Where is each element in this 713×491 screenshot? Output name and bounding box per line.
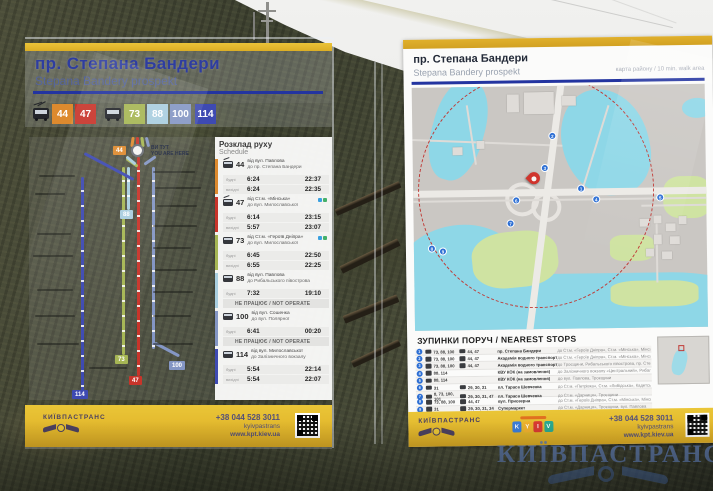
route-to: до пр. Степана Бандери	[247, 165, 301, 171]
route-scheme-map: ВИ ТУТ YOU ARE HERE 44 47 73 88 100 114	[29, 137, 215, 400]
building	[662, 251, 672, 259]
schedule-row-73: 73 від Ст.м. «Героїв Дніпра»до вул. Мило…	[219, 235, 329, 270]
terminal-badge-88: 88	[120, 210, 133, 219]
kyivpastrans-brand: КИЇВПАСТРАНС	[43, 414, 106, 421]
route-color-stripe	[215, 197, 218, 232]
left-stop-sign: пр. Степана Бандери Stepana Bandery pros…	[25, 43, 332, 447]
park-area	[610, 280, 698, 307]
hill-step	[351, 339, 401, 367]
left-sign-header: пр. Степана Бандери Stepana Bandery pros…	[25, 51, 332, 103]
schedule-title: Розклад руху	[219, 140, 329, 149]
stop-label-bar	[153, 171, 195, 173]
bus-icon	[426, 378, 432, 383]
district-map: 2 3 1 4 5 6 7 8 9	[412, 84, 708, 331]
terminal-badge-44: 44	[113, 146, 126, 155]
trolleybus-icon	[459, 356, 465, 361]
left-sign-top-band	[25, 43, 332, 51]
route-to: до Рибальського півострова	[247, 279, 310, 285]
times-weekday: будні5:5422:14	[223, 365, 329, 374]
route-number: 44	[236, 160, 244, 169]
route-feature-icons	[318, 236, 327, 240]
stop-label-bar	[37, 233, 71, 235]
hill-step	[339, 238, 400, 273]
route-feature-icons	[318, 198, 327, 202]
right-sign-subtitle: Stepana Bandery prospekt	[413, 66, 520, 77]
hill-step	[343, 294, 400, 323]
stop-marker: 2	[548, 132, 556, 140]
schedule-panel: Розклад руху Schedule 44 від вул. Павлов…	[215, 137, 332, 400]
stop-marker: 8	[428, 245, 436, 253]
stop-marker: 9	[439, 247, 447, 255]
route-line-114	[81, 177, 84, 392]
nearest-stops-title: ЗУПИНКИ ПОРУЧ / NEAREST STOPS	[417, 334, 576, 346]
route-number: 73	[236, 236, 244, 245]
stop-marker: 5	[656, 193, 664, 201]
kyiv-logo-script	[520, 416, 546, 419]
schedule-subtitle: Schedule	[219, 149, 329, 156]
route-number: 100	[236, 312, 249, 321]
schedule-row-100: 100 від вул. Сошенкадо вул. Полярної буд…	[219, 311, 329, 346]
stop-label-bar	[153, 225, 197, 227]
route-to: до вул. Полярної	[252, 317, 290, 323]
route-line-88	[127, 167, 130, 210]
you-are-here-marker	[131, 144, 144, 157]
trolleybus-icon	[460, 399, 466, 404]
bus-icon	[426, 371, 432, 376]
plexiglass-edge	[374, 62, 376, 444]
stop-label-bar	[35, 193, 65, 195]
bus-icon	[223, 313, 233, 320]
bus-icon	[105, 108, 121, 119]
building	[666, 223, 676, 231]
right-sign-title: пр. Степана Бандери	[413, 52, 528, 66]
bus-icon	[426, 400, 432, 405]
schedule-row-47: 47 від Ст.м. «Мінська»до вул. Милославсь…	[219, 197, 329, 232]
antenna-crossbar	[261, 20, 273, 22]
route-color-stripe	[215, 273, 218, 308]
building	[678, 216, 686, 224]
overview-mini-map	[657, 336, 710, 385]
stop-label-bar	[155, 187, 201, 189]
nearest-stops-table: 173, 88, 10044, 47пр. Степана Бандеридо …	[415, 346, 652, 414]
stop-label-bar	[89, 367, 127, 369]
route-badges-row: 44 47 73 88 100 114	[25, 103, 332, 127]
route-to: до вул. Милославської	[247, 203, 298, 209]
plexiglass-edge	[332, 38, 334, 448]
antenna-crossbar	[258, 10, 276, 12]
photo-vignette	[0, 421, 713, 491]
antenna-mast	[266, 2, 269, 48]
route-line-73	[122, 167, 125, 355]
stop-marker: 7	[507, 219, 515, 227]
route-line	[143, 155, 156, 165]
stop-label-bar	[155, 269, 197, 271]
plexiglass-edge	[25, 37, 332, 39]
trolleybus-icon	[460, 394, 466, 399]
schedule-row-88: 88 від вул. Павловадо Рибальського півос…	[219, 273, 329, 308]
stop-label-bar	[37, 289, 73, 291]
left-sign-subtitle: Stepana Bandery prospekt	[35, 74, 177, 88]
bus-icon	[425, 349, 431, 354]
stop-label-bar	[35, 315, 75, 317]
stop-label-bar	[157, 205, 197, 207]
route-badge-100: 100	[170, 104, 191, 124]
times-weekday: будні6:1423:15	[223, 213, 329, 222]
trolleybus-icon	[460, 363, 466, 368]
schedule-row-114: 114 від вул. Милославськоїдо Залізничног…	[219, 349, 329, 384]
trolleybus-icon	[223, 199, 233, 206]
building	[653, 215, 661, 223]
terminal-badge-47: 47	[129, 376, 142, 385]
times-weekday: будні6:2422:37	[223, 175, 329, 184]
stop-marker: 6	[512, 196, 520, 204]
building	[670, 236, 680, 244]
hill-step	[335, 181, 402, 216]
route-color-stripe	[215, 235, 218, 270]
stop-label-bar	[153, 291, 193, 293]
trolleybus-icon	[223, 161, 233, 168]
bus-icon	[223, 237, 233, 244]
route-color-stripe	[215, 349, 218, 384]
you-are-here-label: ВИ ТУТ YOU ARE HERE	[151, 145, 189, 157]
stop-label-bar	[153, 343, 193, 345]
bus-icon	[426, 385, 432, 390]
bus-icon	[223, 275, 233, 282]
plexiglass-edge	[381, 62, 383, 444]
right-map-sign: пр. Степана Бандери Stepana Bandery pros…	[403, 36, 713, 447]
route-line	[145, 137, 150, 147]
stop-marker: 1	[577, 184, 585, 192]
bus-icon	[223, 351, 233, 358]
stop-label-bar	[37, 343, 79, 345]
route-number: 88	[236, 274, 244, 283]
utility-pole	[253, 12, 255, 40]
stop-marker: 4	[592, 195, 600, 203]
stop-label-bar	[153, 315, 191, 317]
route-badge-44: 44	[52, 104, 73, 124]
route-badge-88: 88	[147, 104, 168, 124]
trolleybus-icon	[459, 349, 465, 354]
building	[646, 249, 654, 257]
current-area-square	[678, 345, 684, 351]
route-number: 47	[236, 198, 244, 207]
times-weekday: будні7:3219:10	[223, 289, 329, 298]
stop-marker: 3	[541, 164, 549, 172]
route-color-stripe	[215, 159, 218, 194]
route-badge-114: 114	[195, 104, 216, 124]
stop-label-bar	[33, 255, 73, 257]
header-divider	[33, 91, 323, 94]
times-weekend: вихідні6:5522:25	[223, 261, 329, 270]
water-area	[682, 98, 708, 118]
times-weekday: будні6:4100:20	[223, 327, 329, 336]
terminal-badge-114: 114	[72, 390, 88, 399]
route-color-stripe	[215, 311, 218, 346]
route-number: 114	[236, 350, 248, 359]
times-weekend: вихідні6:2422:35	[223, 185, 329, 194]
times-weekday: будні6:4522:50	[223, 251, 329, 260]
not-operate-note: НЕ ПРАЦЮЄ / NOT OPERATE	[223, 299, 329, 308]
route-badge-47: 47	[75, 104, 96, 124]
header-divider	[412, 78, 705, 85]
terminal-badge-73: 73	[115, 355, 128, 364]
route-to: до вул. Милославської	[247, 241, 303, 247]
route-to: до Залізничного вокзалу	[251, 355, 306, 361]
schedule-row-44: 44 від вул. Павловадо пр. Степана Бандер…	[219, 159, 329, 194]
stop-label-bar	[153, 247, 191, 249]
terminal-badge-100: 100	[169, 361, 185, 370]
route-badge-73: 73	[124, 104, 145, 124]
photo-scene: пр. Степана Бандери Stepana Bandery pros…	[0, 0, 713, 491]
stop-label-bar	[39, 175, 75, 177]
times-weekend: вихідні5:5723:07	[223, 223, 329, 232]
bus-icon	[426, 395, 432, 400]
trolleybus-icon	[460, 385, 466, 390]
not-operate-note: НЕ ПРАЦЮЄ / NOT OPERATE	[223, 337, 329, 346]
bus-icon	[425, 357, 431, 362]
trolleybus-icon	[33, 108, 49, 119]
walk-area-note: карта району / 10 min. walk area	[616, 66, 705, 73]
route-line-100	[152, 167, 155, 349]
left-sign-title: пр. Степана Бандери	[35, 54, 220, 74]
times-weekend: вихідні5:5422:07	[223, 375, 329, 384]
bus-icon	[426, 364, 432, 369]
route-line-47	[137, 157, 140, 376]
building	[654, 234, 662, 244]
road	[656, 222, 659, 282]
